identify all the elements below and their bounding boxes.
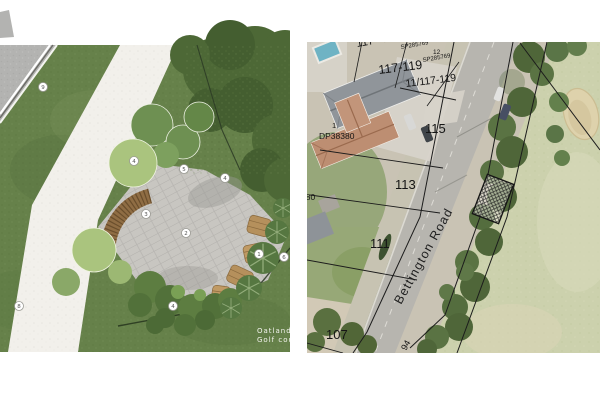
- plan-marker: 5: [180, 165, 189, 174]
- svg-text:2: 2: [184, 231, 188, 237]
- plan-label-380: 380: [307, 192, 315, 202]
- plan-marker: 8: [15, 302, 24, 311]
- landscape-plan-panel: 9 4 5 4 3 2 1 6 4 8 Oatlands Golf course: [0, 0, 290, 352]
- aerial-cadastral-panel: 117 - 119 SP285769 12 SP285769 117-119 1…: [307, 42, 600, 353]
- svg-text:Golf course: Golf course: [257, 336, 290, 344]
- lot-label-111: 111: [370, 236, 390, 251]
- aerial-map-image: 117 - 119 SP285769 12 SP285769 117-119 1…: [307, 42, 600, 353]
- landscape-plan-image: 9 4 5 4 3 2 1 6 4 8 Oatlands Golf course: [0, 0, 290, 352]
- plan-marker: 4: [221, 174, 230, 183]
- plan-marker: 1: [255, 250, 264, 259]
- plan-marker: 2: [182, 229, 191, 238]
- plan-marker: 9: [39, 83, 48, 92]
- svg-text:4: 4: [132, 159, 136, 165]
- svg-text:1: 1: [257, 252, 261, 258]
- svg-text:8: 8: [17, 304, 21, 310]
- lot-label-107: 107: [326, 327, 348, 342]
- plan-label-dp38380: DP38380: [319, 131, 355, 141]
- plan-marker: 6: [280, 253, 289, 262]
- golf-course-label: Oatlands Golf course: [257, 327, 290, 344]
- svg-text:6: 6: [282, 255, 286, 261]
- lot-label-113: 113: [395, 177, 416, 192]
- svg-text:4: 4: [171, 304, 175, 310]
- svg-text:Oatlands: Oatlands: [257, 327, 290, 335]
- lot-number-1: 1: [332, 121, 336, 130]
- plan-marker: 4: [169, 302, 178, 311]
- svg-text:5: 5: [182, 167, 186, 173]
- page: 9 4 5 4 3 2 1 6 4 8 Oatlands Golf course: [0, 0, 600, 400]
- svg-text:4: 4: [223, 176, 227, 182]
- plan-marker: 3: [142, 210, 151, 219]
- lot-label-115: 115: [425, 121, 446, 136]
- svg-text:3: 3: [144, 212, 148, 218]
- plan-marker: 4: [130, 157, 139, 166]
- svg-text:9: 9: [41, 85, 45, 91]
